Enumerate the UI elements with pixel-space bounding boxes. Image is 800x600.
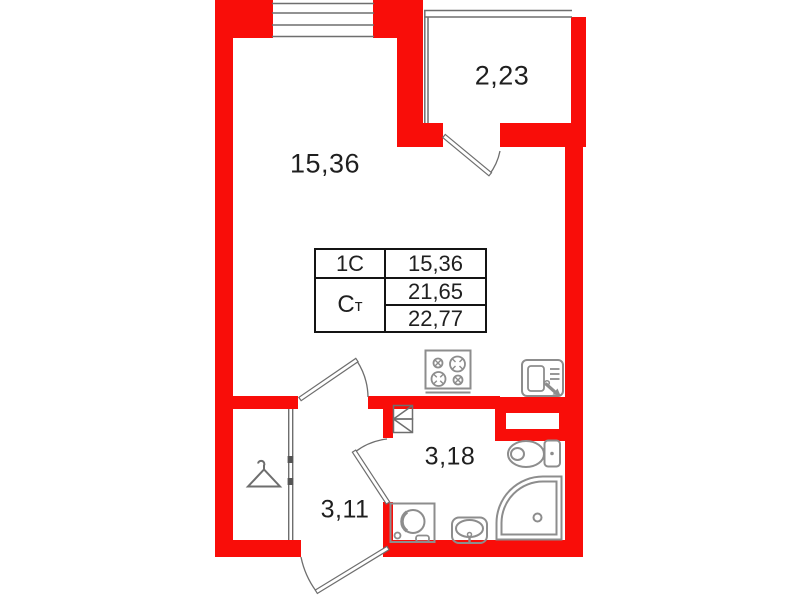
stove-icon (426, 351, 471, 393)
floor-plan: 15,36 2,23 3,18 3,11 1С 15,36 Ст 21,65 2… (0, 0, 800, 600)
door-leaf (315, 546, 389, 593)
hallway-area-label: 3,11 (321, 496, 370, 525)
balcony-area-label: 2,23 (475, 61, 530, 92)
table-cell-type: 1С (316, 250, 384, 277)
kitchen-cabinet-sink-icon (522, 360, 563, 396)
vent-shaft-icon (394, 406, 413, 433)
table-cell-studio-type: Ст (316, 277, 384, 331)
shower-tray-icon (497, 477, 562, 540)
toilet-icon (508, 441, 560, 468)
living-area-label: 15,36 (290, 149, 360, 180)
studio-type-sub: т (355, 297, 363, 314)
living-room-door (299, 358, 368, 400)
balcony-door (443, 134, 500, 175)
apartment-info-table: 1С 15,36 Ст 21,65 22,77 (314, 248, 487, 333)
closet-partition (288, 409, 294, 540)
washbasin-icon (452, 518, 487, 544)
bathroom-area-label: 3,18 (425, 443, 476, 472)
table-cell-living-area: 15,36 (384, 250, 485, 277)
window-lines (272, 4, 374, 37)
entry-door (301, 546, 389, 593)
table-cell-area-wo-balcony: 21,65 (384, 277, 485, 304)
studio-type-main: С (337, 293, 354, 317)
washing-machine-icon (391, 504, 435, 543)
door-leaf (299, 358, 358, 400)
hanger-icon (248, 461, 280, 487)
table-cell-total-area: 22,77 (384, 304, 485, 331)
door-leaf (443, 134, 492, 175)
bathroom-door (352, 439, 389, 504)
